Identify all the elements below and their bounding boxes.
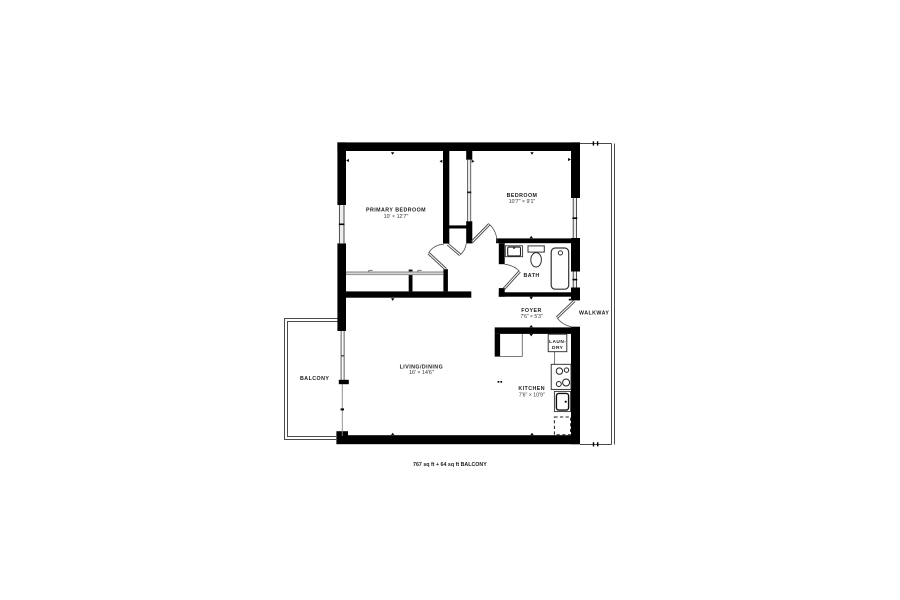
svg-text:BEDROOM: BEDROOM	[507, 193, 538, 199]
svg-text:PRIMARY BEDROOM: PRIMARY BEDROOM	[366, 208, 426, 214]
svg-text:10'7" × 9'1": 10'7" × 9'1"	[509, 199, 536, 205]
svg-text:10' × 12'7": 10' × 12'7"	[384, 214, 409, 220]
svg-text:DRY: DRY	[552, 345, 564, 351]
svg-text:WALKWAY: WALKWAY	[579, 311, 609, 317]
svg-text:767 sq ft + 64 sq ft BALCONY: 767 sq ft + 64 sq ft BALCONY	[413, 462, 487, 468]
svg-text:7'6" × 10'9": 7'6" × 10'9"	[519, 393, 545, 399]
svg-text:BATH: BATH	[524, 273, 540, 279]
svg-text:16' × 14'6": 16' × 14'6"	[409, 370, 434, 376]
svg-text:LAUN-: LAUN-	[549, 339, 566, 345]
svg-text:KITCHEN: KITCHEN	[518, 386, 545, 392]
svg-text:BALCONY: BALCONY	[300, 376, 329, 382]
svg-text:7'6" × 5'3": 7'6" × 5'3"	[520, 314, 543, 320]
